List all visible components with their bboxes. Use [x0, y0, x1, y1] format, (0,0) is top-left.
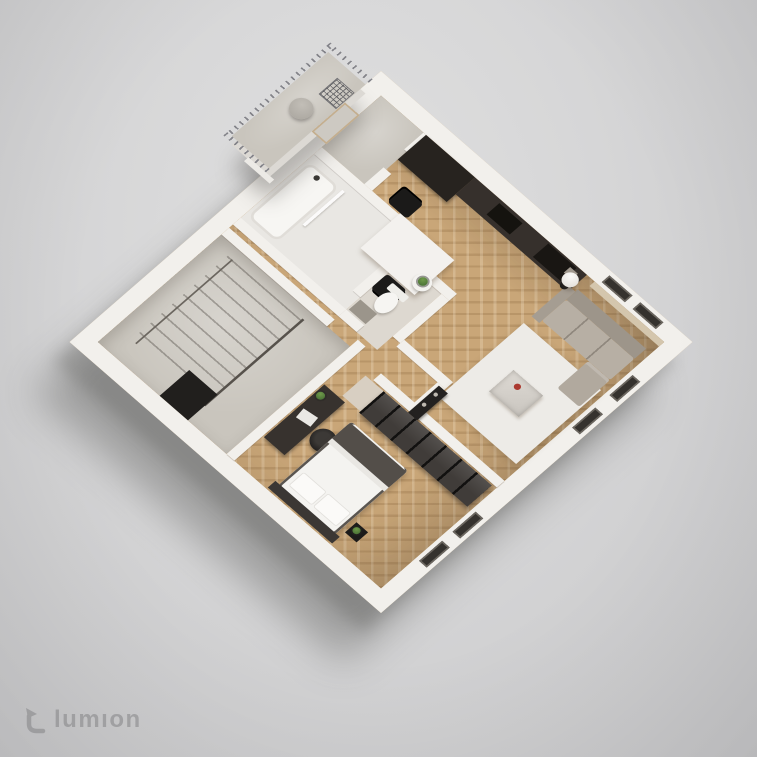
- watermark: lumıon: [22, 706, 142, 734]
- watermark-text: lumıon: [54, 706, 142, 734]
- floor-plan: [70, 71, 693, 613]
- render-canvas: lumıon: [0, 0, 757, 757]
- lumion-logo-icon: [22, 706, 46, 734]
- floor-interior: [98, 96, 664, 589]
